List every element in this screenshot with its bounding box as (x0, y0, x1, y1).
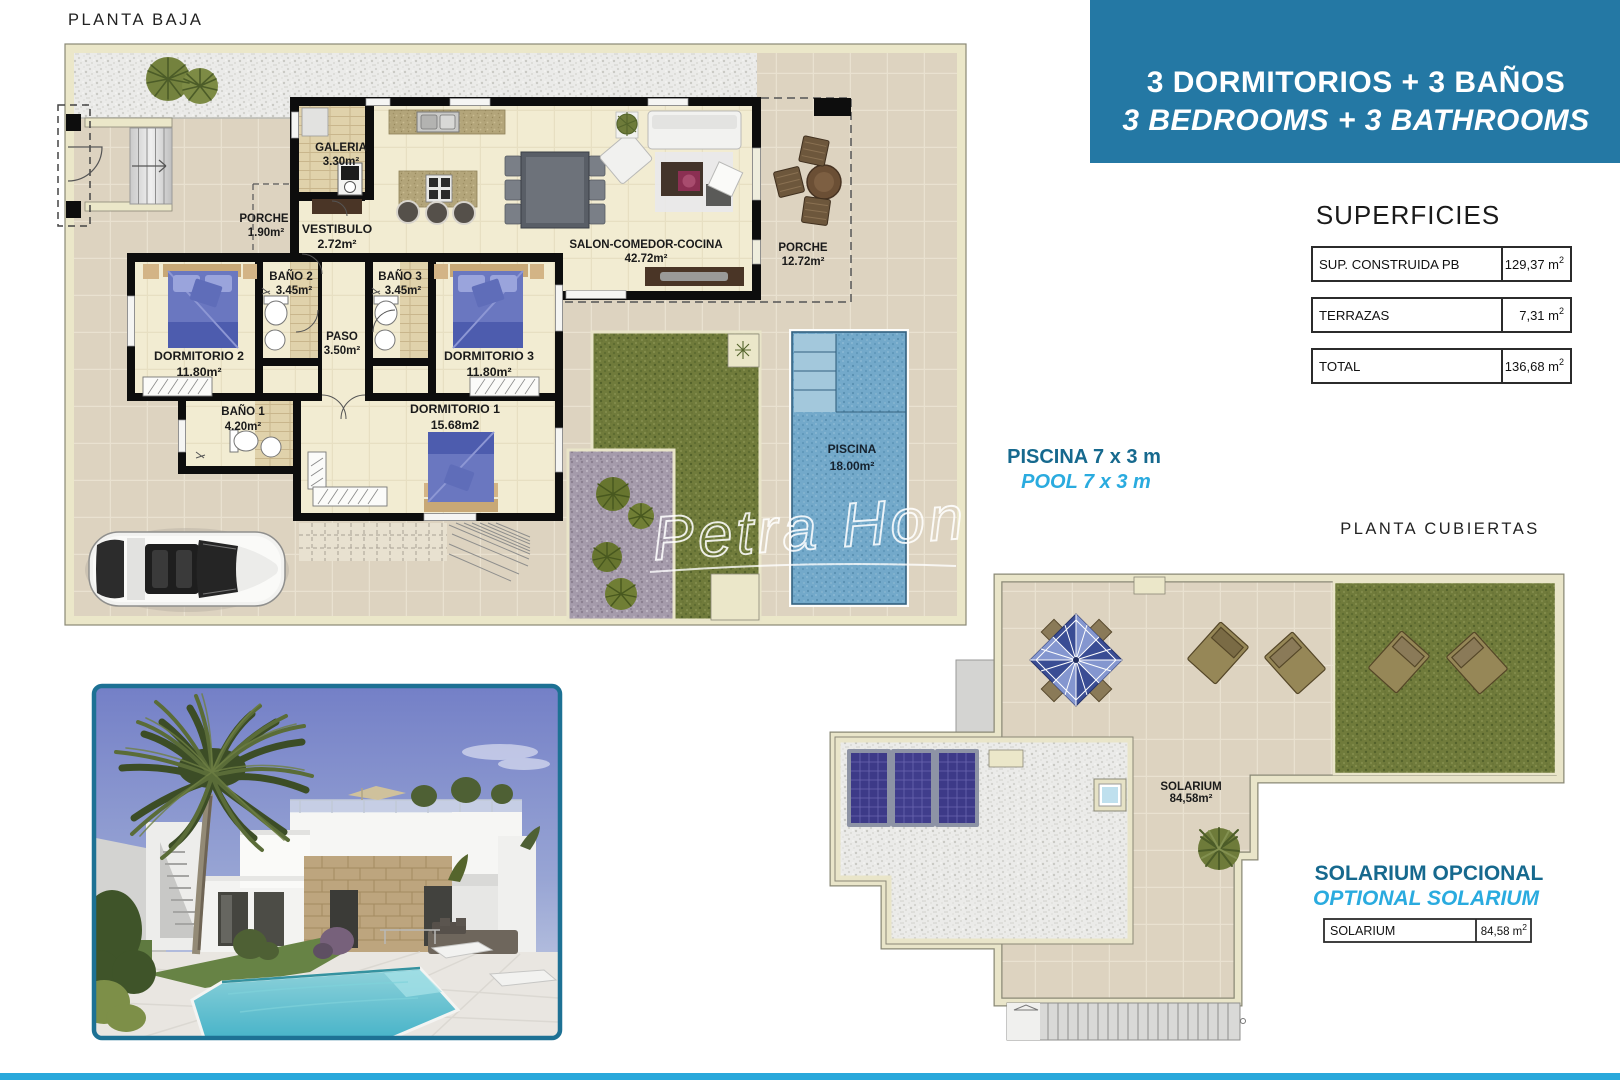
svg-text:SUPERFICIES: SUPERFICIES (1316, 200, 1500, 230)
svg-text:129,37 m2: 129,37 m2 (1505, 255, 1564, 272)
svg-text:SOLARIUM OPCIONAL: SOLARIUM OPCIONAL (1315, 862, 1544, 885)
svg-text:15.68m2: 15.68m2 (431, 418, 480, 432)
svg-text:2.72m²: 2.72m² (318, 237, 357, 251)
svg-text:7,31 m2: 7,31 m2 (1519, 306, 1564, 323)
svg-text:OPTIONAL SOLARIUM: OPTIONAL SOLARIUM (1313, 887, 1539, 910)
svg-text:TOTAL: TOTAL (1319, 359, 1360, 374)
svg-text:SALON-COMEDOR-COCINA: SALON-COMEDOR-COCINA (569, 239, 722, 251)
svg-text:PISCINA 7 x 3 m: PISCINA 7 x 3 m (1007, 446, 1161, 468)
svg-text:BAÑO 3: BAÑO 3 (378, 270, 421, 283)
svg-text:3.45m²: 3.45m² (276, 285, 313, 297)
svg-text:TERRAZAS: TERRAZAS (1319, 308, 1390, 323)
svg-text:PORCHE: PORCHE (778, 242, 828, 254)
svg-text:3.45m²: 3.45m² (385, 285, 422, 297)
svg-text:DORMITORIO 3: DORMITORIO 3 (444, 349, 534, 363)
svg-text:BAÑO 2: BAÑO 2 (269, 270, 312, 283)
svg-text:84,58 m2: 84,58 m2 (1481, 922, 1528, 938)
svg-text:SOLARIUM: SOLARIUM (1330, 924, 1395, 938)
svg-text:GALERIA: GALERIA (315, 142, 367, 154)
svg-text:3.30m²: 3.30m² (323, 156, 360, 168)
svg-text:BAÑO 1: BAÑO 1 (221, 405, 265, 418)
svg-text:42.72m²: 42.72m² (625, 253, 668, 265)
svg-text:SOLARIUM: SOLARIUM (1160, 781, 1221, 793)
svg-text:12.72m²: 12.72m² (782, 256, 825, 268)
svg-text:84,58m²: 84,58m² (1170, 793, 1213, 805)
svg-text:PASO: PASO (326, 331, 358, 343)
svg-text:SUP. CONSTRUIDA PB: SUP. CONSTRUIDA PB (1319, 257, 1460, 272)
svg-text:3.50m²: 3.50m² (324, 345, 361, 357)
svg-text:PLANTA BAJA: PLANTA BAJA (68, 11, 203, 29)
svg-text:11.80m²: 11.80m² (176, 365, 221, 379)
svg-text:PLANTA CUBIERTAS: PLANTA CUBIERTAS (1340, 520, 1540, 538)
svg-text:PISCINA: PISCINA (828, 442, 877, 456)
svg-text:4.20m²: 4.20m² (225, 421, 262, 433)
svg-text:DORMITORIO 2: DORMITORIO 2 (154, 349, 244, 363)
svg-text:DORMITORIO 1: DORMITORIO 1 (410, 402, 500, 416)
svg-text:11.80m²: 11.80m² (466, 365, 511, 379)
svg-text:3 BEDROOMS + 3 BATHROOMS: 3 BEDROOMS + 3 BATHROOMS (1122, 104, 1589, 137)
svg-text:POOL 7 x 3 m: POOL 7 x 3 m (1021, 471, 1151, 493)
svg-text:18.00m²: 18.00m² (830, 459, 875, 473)
svg-text:PORCHE: PORCHE (239, 213, 289, 225)
svg-text:136,68 m2: 136,68 m2 (1505, 357, 1564, 374)
svg-text:3 DORMITORIOS + 3 BAÑOS: 3 DORMITORIOS + 3 BAÑOS (1147, 65, 1566, 99)
svg-text:VESTIBULO: VESTIBULO (302, 222, 373, 236)
